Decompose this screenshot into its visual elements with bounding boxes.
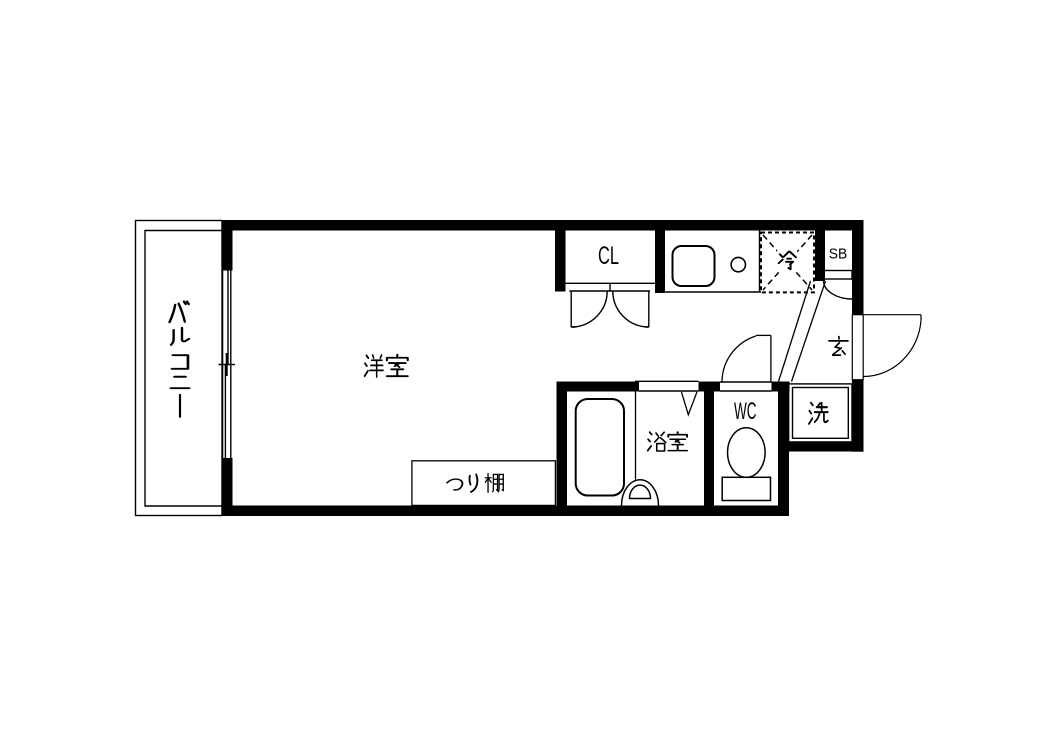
svg-text:WC: WC [734,398,757,425]
svg-text:CL: CL [598,242,619,270]
svg-text:SB: SB [829,246,848,263]
